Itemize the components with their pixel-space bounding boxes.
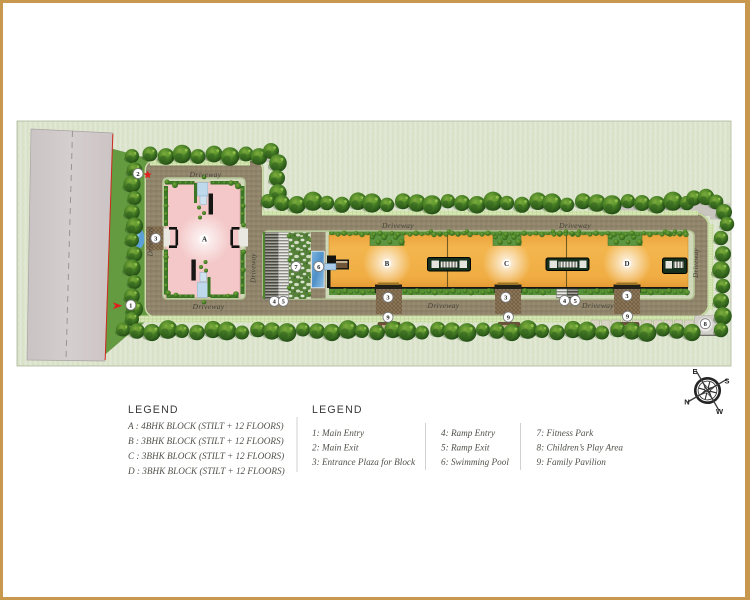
svg-text:Driveway: Driveway xyxy=(192,302,225,311)
svg-text:Driveway: Driveway xyxy=(250,253,258,284)
svg-text:A : 4BHK BLOCK (STILT + 12 FLO: A : 4BHK BLOCK (STILT + 12 FLOORS) xyxy=(127,421,284,431)
svg-text:9: Family Pavilion: 9: Family Pavilion xyxy=(537,457,607,467)
svg-text:1: Main Entry: 1: Main Entry xyxy=(312,428,365,438)
svg-text:B : 3BHK BLOCK (STILT + 12 FLO: B : 3BHK BLOCK (STILT + 12 FLOORS) xyxy=(128,436,284,446)
svg-text:N: N xyxy=(684,398,689,407)
svg-text:C : 3BHK BLOCK (STILT + 12 FLO: C : 3BHK BLOCK (STILT + 12 FLOORS) xyxy=(128,451,284,461)
svg-text:LEGEND: LEGEND xyxy=(128,404,179,416)
svg-text:2: Main Exit: 2: Main Exit xyxy=(312,443,359,453)
svg-text:Driveway: Driveway xyxy=(427,301,460,310)
svg-text:1: 1 xyxy=(129,302,132,309)
svg-text:Driveway: Driveway xyxy=(558,221,591,230)
svg-text:3: Entrance Plaza for Block: 3: Entrance Plaza for Block xyxy=(311,457,416,467)
svg-text:7: Fitness Park: 7: Fitness Park xyxy=(537,428,595,438)
svg-text:S: S xyxy=(724,377,729,386)
svg-text:LEGEND: LEGEND xyxy=(312,404,363,416)
svg-text:Driveway: Driveway xyxy=(381,221,414,230)
svg-text:B: B xyxy=(385,260,390,268)
svg-text:Driveway: Driveway xyxy=(189,170,222,179)
svg-text:W: W xyxy=(716,407,724,416)
svg-text:Driveway: Driveway xyxy=(581,301,614,310)
svg-text:2: 2 xyxy=(136,171,139,178)
svg-text:4: Ramp Entry: 4: Ramp Entry xyxy=(441,428,496,438)
svg-text:Driveway: Driveway xyxy=(692,248,700,279)
svg-text:A: A xyxy=(202,236,207,244)
svg-text:5: Ramp Exit: 5: Ramp Exit xyxy=(441,443,490,453)
svg-text:8: Children’s Play Area: 8: Children’s Play Area xyxy=(537,443,624,453)
svg-text:D : 3BHK BLOCK (STILT + 12 FLO: D : 3BHK BLOCK (STILT + 12 FLOORS) xyxy=(127,466,285,476)
svg-text:D: D xyxy=(624,260,629,268)
svg-text:C: C xyxy=(504,260,509,268)
svg-text:6: Swimming Pool: 6: Swimming Pool xyxy=(441,457,509,467)
svg-text:E: E xyxy=(692,367,697,376)
